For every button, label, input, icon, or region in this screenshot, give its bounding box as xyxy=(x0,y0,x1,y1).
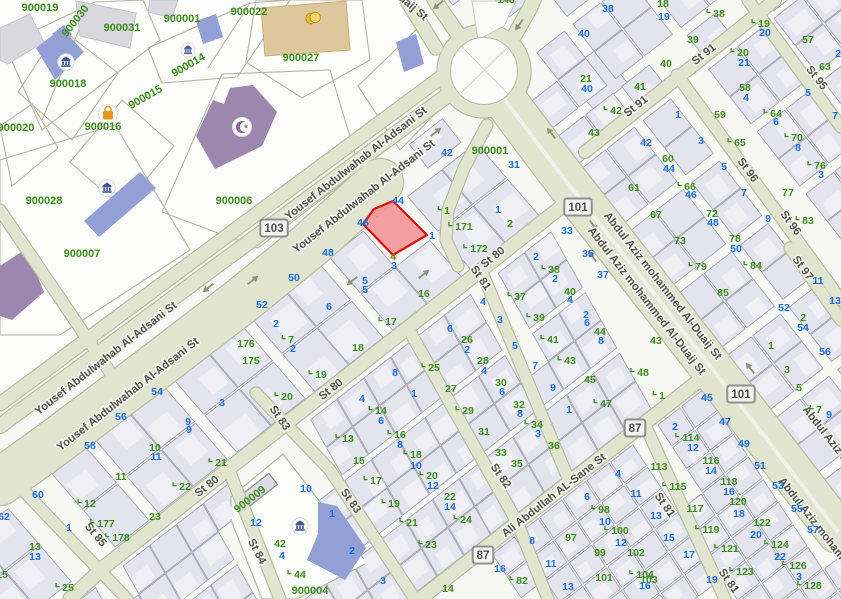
svg-text:42: 42 xyxy=(441,147,453,159)
svg-text:38: 38 xyxy=(602,3,614,15)
svg-text:172: 172 xyxy=(470,243,488,255)
svg-text:57: 57 xyxy=(807,524,819,536)
svg-text:123: 123 xyxy=(736,566,754,578)
svg-text:900027: 900027 xyxy=(283,52,320,64)
svg-text:5: 5 xyxy=(721,161,727,173)
svg-text:1: 1 xyxy=(66,522,72,534)
svg-text:87: 87 xyxy=(477,550,490,562)
svg-text:6: 6 xyxy=(584,317,590,329)
svg-text:900019: 900019 xyxy=(22,2,59,14)
svg-text:12: 12 xyxy=(687,442,699,454)
svg-text:119: 119 xyxy=(703,524,720,536)
svg-text:13: 13 xyxy=(829,295,841,307)
svg-text:53: 53 xyxy=(772,480,784,492)
svg-text:36: 36 xyxy=(548,440,560,452)
svg-text:43: 43 xyxy=(564,355,576,367)
svg-text:13: 13 xyxy=(342,433,354,445)
svg-text:2: 2 xyxy=(273,318,279,330)
svg-text:77: 77 xyxy=(782,187,794,199)
svg-text:43: 43 xyxy=(588,127,600,139)
svg-text:23: 23 xyxy=(149,511,161,523)
svg-text:43: 43 xyxy=(650,335,662,347)
svg-text:47: 47 xyxy=(719,416,731,428)
svg-text:900028: 900028 xyxy=(26,195,63,207)
svg-text:12: 12 xyxy=(84,498,96,510)
svg-text:900007: 900007 xyxy=(64,248,101,260)
svg-text:50: 50 xyxy=(288,272,300,284)
svg-text:1: 1 xyxy=(444,205,450,217)
svg-text:117: 117 xyxy=(687,503,704,515)
svg-text:900001: 900001 xyxy=(472,145,509,157)
svg-text:8: 8 xyxy=(529,535,535,547)
svg-text:44: 44 xyxy=(663,163,675,175)
svg-text:19: 19 xyxy=(315,369,327,381)
svg-text:44: 44 xyxy=(392,195,404,207)
svg-text:82: 82 xyxy=(516,575,528,587)
svg-text:14: 14 xyxy=(705,465,717,477)
svg-text:40: 40 xyxy=(581,83,593,95)
svg-text:51: 51 xyxy=(754,460,766,472)
svg-text:900004: 900004 xyxy=(292,585,330,597)
svg-text:97: 97 xyxy=(565,532,577,544)
svg-text:8: 8 xyxy=(397,439,403,451)
svg-text:46: 46 xyxy=(357,217,369,229)
svg-text:39: 39 xyxy=(687,34,699,46)
svg-text:19: 19 xyxy=(388,498,400,510)
svg-text:83: 83 xyxy=(802,215,814,227)
svg-text:8: 8 xyxy=(795,142,801,154)
svg-text:6: 6 xyxy=(584,491,590,503)
svg-text:124: 124 xyxy=(771,539,789,551)
svg-text:148: 148 xyxy=(497,0,515,6)
svg-text:25: 25 xyxy=(428,362,440,374)
svg-text:22: 22 xyxy=(774,551,786,563)
svg-text:20: 20 xyxy=(750,529,762,541)
svg-text:900016: 900016 xyxy=(85,121,122,133)
svg-text:2: 2 xyxy=(672,421,678,433)
svg-text:4: 4 xyxy=(480,296,486,308)
svg-text:3: 3 xyxy=(219,397,225,409)
svg-text:1: 1 xyxy=(566,404,572,416)
svg-text:25: 25 xyxy=(62,582,74,594)
svg-text:7: 7 xyxy=(532,360,538,372)
svg-text:54: 54 xyxy=(797,322,809,334)
svg-text:8: 8 xyxy=(392,367,398,379)
svg-text:103: 103 xyxy=(640,574,658,586)
svg-text:39: 39 xyxy=(533,312,545,324)
svg-text:175: 175 xyxy=(242,355,260,367)
svg-text:52: 52 xyxy=(256,299,268,311)
svg-text:2: 2 xyxy=(835,48,841,60)
svg-text:52: 52 xyxy=(778,302,790,314)
svg-text:56: 56 xyxy=(819,346,831,358)
svg-text:128: 128 xyxy=(804,580,822,592)
svg-text:63: 63 xyxy=(819,61,831,73)
svg-text:18: 18 xyxy=(733,508,745,520)
svg-text:98: 98 xyxy=(598,504,610,516)
svg-text:120: 120 xyxy=(729,496,747,508)
svg-text:1: 1 xyxy=(659,390,665,402)
svg-text:3: 3 xyxy=(535,428,541,440)
svg-text:1: 1 xyxy=(329,508,335,520)
svg-text:22: 22 xyxy=(179,481,191,493)
svg-text:2: 2 xyxy=(533,251,539,263)
svg-text:12: 12 xyxy=(615,537,627,549)
svg-text:177: 177 xyxy=(97,518,115,530)
svg-text:16: 16 xyxy=(494,563,506,575)
svg-text:11: 11 xyxy=(545,558,556,570)
svg-text:121: 121 xyxy=(721,543,739,555)
svg-text:13: 13 xyxy=(29,551,41,563)
svg-text:42: 42 xyxy=(610,105,622,117)
svg-text:4: 4 xyxy=(359,393,365,405)
svg-text:58: 58 xyxy=(84,440,96,452)
svg-text:102: 102 xyxy=(627,547,645,559)
svg-text:3: 3 xyxy=(784,364,790,376)
svg-text:9: 9 xyxy=(186,424,192,436)
svg-text:103: 103 xyxy=(264,223,283,235)
svg-text:6: 6 xyxy=(326,301,332,313)
svg-text:7: 7 xyxy=(741,187,747,199)
svg-text:17: 17 xyxy=(683,549,695,561)
svg-text:40: 40 xyxy=(660,58,672,70)
svg-text:31: 31 xyxy=(508,159,520,171)
svg-text:12: 12 xyxy=(427,480,439,492)
svg-text:54: 54 xyxy=(151,386,163,398)
svg-text:5: 5 xyxy=(512,340,518,352)
svg-text:2: 2 xyxy=(464,344,470,356)
svg-text:50: 50 xyxy=(730,243,742,255)
svg-text:19: 19 xyxy=(658,11,670,23)
svg-text:60: 60 xyxy=(32,489,44,501)
svg-text:6: 6 xyxy=(499,386,505,398)
svg-text:3: 3 xyxy=(497,314,503,326)
svg-text:171: 171 xyxy=(455,221,473,233)
svg-text:2: 2 xyxy=(349,545,355,557)
svg-text:5: 5 xyxy=(796,382,802,394)
svg-text:73: 73 xyxy=(674,235,686,247)
svg-text:41: 41 xyxy=(634,81,646,93)
svg-text:56: 56 xyxy=(115,411,127,423)
svg-text:21: 21 xyxy=(406,517,418,529)
svg-text:101: 101 xyxy=(595,572,613,584)
svg-text:1: 1 xyxy=(675,109,681,121)
svg-text:45: 45 xyxy=(701,392,713,404)
svg-text:4: 4 xyxy=(279,550,285,562)
svg-text:41: 41 xyxy=(547,334,559,346)
svg-text:11: 11 xyxy=(150,451,161,463)
svg-text:37: 37 xyxy=(514,291,526,303)
svg-text:10: 10 xyxy=(300,483,312,495)
svg-text:115: 115 xyxy=(670,481,687,493)
svg-text:4: 4 xyxy=(743,92,749,104)
svg-text:900006: 900006 xyxy=(216,195,253,207)
svg-text:11: 11 xyxy=(630,488,641,500)
svg-text:900020: 900020 xyxy=(0,122,34,134)
svg-text:21: 21 xyxy=(738,57,750,69)
svg-text:14: 14 xyxy=(444,501,456,513)
svg-text:4: 4 xyxy=(567,294,573,306)
svg-text:47: 47 xyxy=(600,398,612,410)
svg-text:45: 45 xyxy=(584,374,596,386)
svg-text:13: 13 xyxy=(562,581,574,593)
svg-text:38: 38 xyxy=(713,8,725,20)
svg-text:57: 57 xyxy=(802,34,814,46)
svg-text:79: 79 xyxy=(695,261,707,273)
svg-text:40: 40 xyxy=(578,28,590,40)
svg-text:4: 4 xyxy=(481,365,487,377)
svg-text:33: 33 xyxy=(561,225,573,237)
svg-text:1: 1 xyxy=(411,388,417,400)
svg-text:48: 48 xyxy=(322,247,334,259)
svg-text:20: 20 xyxy=(759,27,771,39)
svg-text:3: 3 xyxy=(698,135,704,147)
svg-text:67: 67 xyxy=(650,209,662,221)
svg-text:4: 4 xyxy=(615,468,621,480)
svg-text:7: 7 xyxy=(832,110,838,122)
svg-text:2: 2 xyxy=(507,218,513,230)
svg-text:101: 101 xyxy=(568,202,588,214)
svg-text:1: 1 xyxy=(429,230,435,242)
svg-text:3: 3 xyxy=(380,575,386,587)
svg-text:176: 176 xyxy=(237,338,255,350)
svg-text:14: 14 xyxy=(442,583,454,595)
svg-text:15: 15 xyxy=(353,455,365,467)
svg-text:17: 17 xyxy=(370,475,382,487)
svg-text:46: 46 xyxy=(685,189,697,201)
svg-text:18: 18 xyxy=(352,342,364,354)
svg-text:101: 101 xyxy=(731,389,751,401)
svg-text:1: 1 xyxy=(495,204,501,216)
svg-text:11: 11 xyxy=(115,471,126,483)
svg-text:12: 12 xyxy=(250,517,262,529)
svg-text:19: 19 xyxy=(706,574,718,586)
svg-text:900031: 900031 xyxy=(104,22,141,34)
svg-text:9: 9 xyxy=(826,409,832,421)
svg-text:3: 3 xyxy=(796,571,802,583)
svg-text:48: 48 xyxy=(707,217,719,229)
svg-text:23: 23 xyxy=(425,539,437,551)
svg-text:10: 10 xyxy=(410,460,422,472)
svg-text:8: 8 xyxy=(517,408,523,420)
svg-text:100: 100 xyxy=(611,525,629,537)
svg-text:42: 42 xyxy=(640,137,652,149)
svg-text:8: 8 xyxy=(598,335,604,347)
svg-text:113: 113 xyxy=(651,461,668,473)
svg-text:27: 27 xyxy=(445,383,457,395)
svg-text:6: 6 xyxy=(773,116,779,128)
svg-text:99: 99 xyxy=(594,547,606,559)
svg-text:31: 31 xyxy=(478,426,490,438)
svg-text:35: 35 xyxy=(582,248,594,260)
svg-text:55: 55 xyxy=(791,503,803,515)
svg-text:49: 49 xyxy=(738,438,750,450)
svg-text:3: 3 xyxy=(818,169,824,181)
svg-text:3: 3 xyxy=(391,260,397,272)
svg-text:900001: 900001 xyxy=(164,13,201,25)
svg-text:17: 17 xyxy=(385,316,397,328)
svg-text:16: 16 xyxy=(418,288,430,300)
svg-text:21: 21 xyxy=(215,457,227,469)
svg-text:900022: 900022 xyxy=(231,6,268,18)
svg-text:44: 44 xyxy=(294,569,306,581)
svg-text:9: 9 xyxy=(550,382,556,394)
svg-text:48: 48 xyxy=(637,367,649,379)
svg-text:6: 6 xyxy=(447,323,453,335)
svg-text:59: 59 xyxy=(714,109,726,121)
svg-text:6: 6 xyxy=(378,415,384,427)
svg-text:65: 65 xyxy=(734,137,746,149)
svg-text:15: 15 xyxy=(663,532,675,544)
svg-text:61: 61 xyxy=(628,182,640,194)
svg-text:900018: 900018 xyxy=(50,78,87,90)
svg-text:1: 1 xyxy=(768,340,774,352)
svg-text:18: 18 xyxy=(657,0,669,10)
svg-text:11: 11 xyxy=(812,275,823,287)
svg-text:15: 15 xyxy=(0,569,8,581)
svg-text:87: 87 xyxy=(629,423,642,435)
svg-text:42: 42 xyxy=(274,538,286,550)
svg-text:5: 5 xyxy=(805,87,811,99)
svg-text:9: 9 xyxy=(765,213,771,225)
svg-text:37: 37 xyxy=(597,269,609,281)
svg-text:24: 24 xyxy=(460,514,472,526)
svg-text:33: 33 xyxy=(495,447,507,459)
svg-text:178: 178 xyxy=(112,532,130,544)
svg-text:85: 85 xyxy=(717,287,729,299)
svg-text:5: 5 xyxy=(362,284,368,296)
svg-text:2: 2 xyxy=(290,343,296,355)
svg-text:84: 84 xyxy=(750,260,762,272)
svg-text:2: 2 xyxy=(552,273,558,285)
svg-text:20: 20 xyxy=(281,391,293,403)
svg-text:122: 122 xyxy=(753,517,771,529)
svg-text:13: 13 xyxy=(650,510,662,522)
svg-text:29: 29 xyxy=(462,405,474,417)
svg-text:35: 35 xyxy=(511,458,523,470)
svg-text:62: 62 xyxy=(0,511,10,523)
svg-text:7: 7 xyxy=(816,404,822,416)
